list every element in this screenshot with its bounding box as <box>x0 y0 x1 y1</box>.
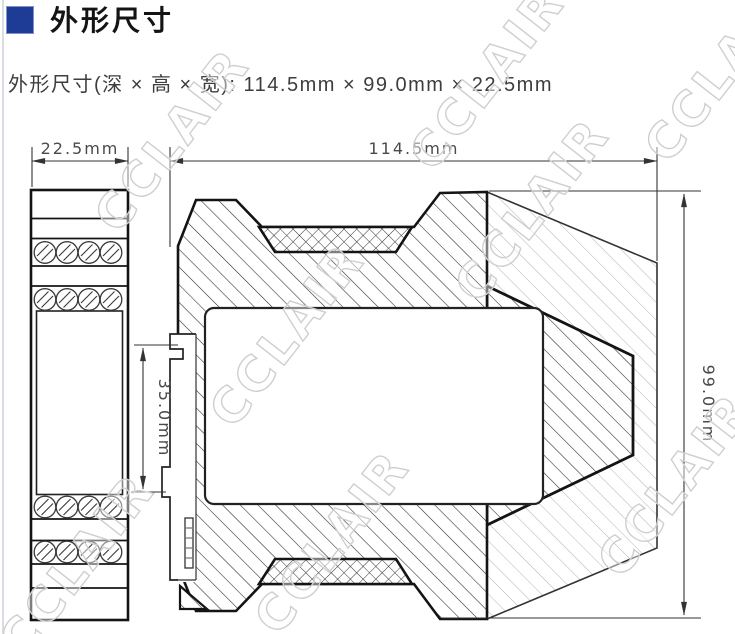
dim-label-width: 22.5mm <box>41 139 120 158</box>
front-label-window <box>37 311 123 495</box>
watermark-text: CCLAIR <box>634 0 735 173</box>
technical-drawing: 22.5mm 114.5mm 99.0mm 35.0mm CCLAIR CCLA… <box>0 0 735 634</box>
clip-spring <box>185 518 193 568</box>
datasheet-page: 外形尺寸 外形尺寸(深 × 高 × 宽): 114.5mm × 99.0mm ×… <box>0 0 735 634</box>
dim-label-rail-slot: 35.0mm <box>155 379 174 458</box>
